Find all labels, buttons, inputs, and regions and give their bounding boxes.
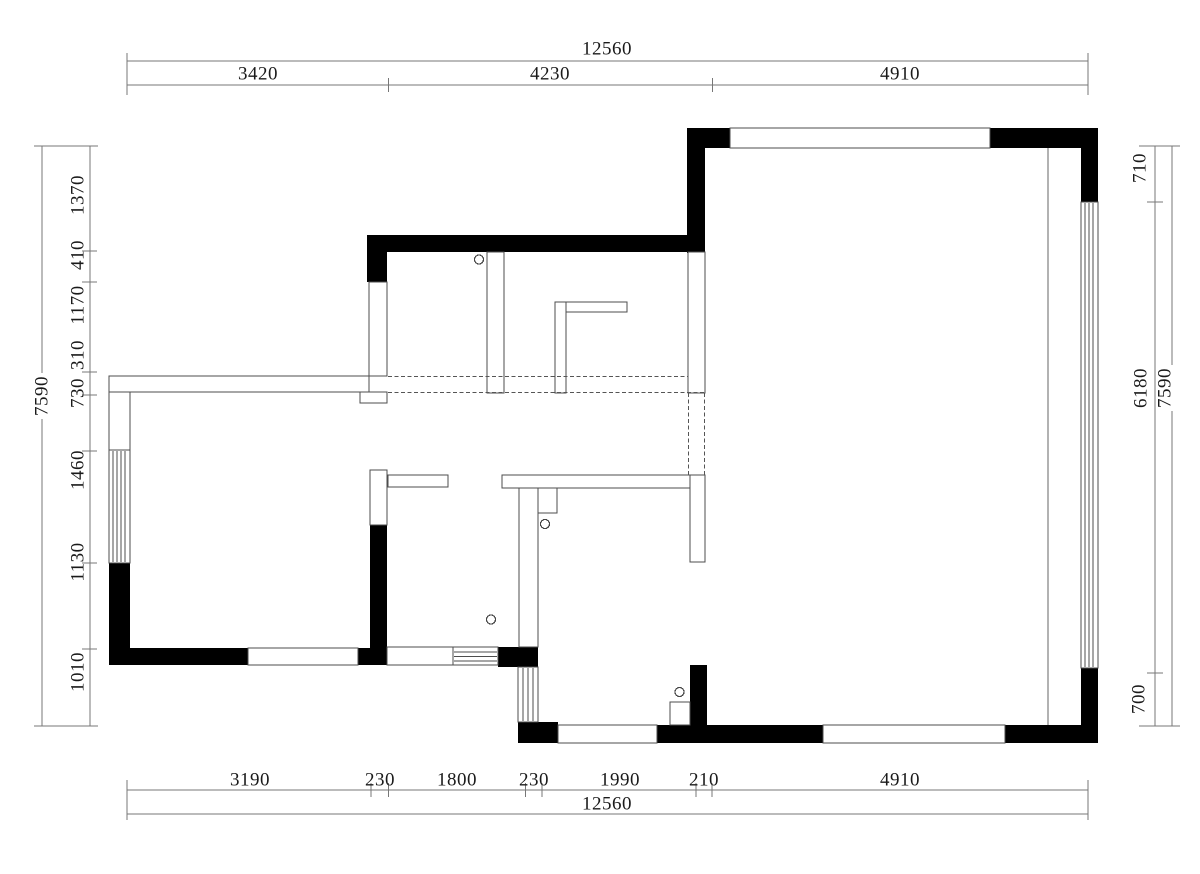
wall-segment bbox=[110, 648, 248, 665]
outline-wall bbox=[388, 475, 448, 487]
wall-segment bbox=[358, 648, 387, 665]
dim-left-segment-6: 1130 bbox=[69, 542, 88, 581]
outline-wall bbox=[387, 647, 453, 665]
outline-wall bbox=[555, 302, 566, 393]
wall-segment bbox=[370, 525, 387, 650]
wall-segment bbox=[367, 252, 387, 282]
dim-top-segment-1: 4230 bbox=[530, 65, 570, 84]
dim-bottom-segment-4: 1990 bbox=[600, 771, 640, 790]
dim-left-total: 7590 bbox=[33, 373, 52, 419]
dim-top-total: 12560 bbox=[582, 40, 632, 59]
window-glazing bbox=[113, 203, 1093, 721]
dim-right-total: 7590 bbox=[1156, 365, 1175, 411]
floor-plan-drawing bbox=[0, 0, 1200, 874]
drain-symbol bbox=[675, 688, 684, 697]
window-frame bbox=[823, 725, 1005, 743]
dimension-chain-right bbox=[1139, 146, 1180, 726]
dim-right-segment-0: 710 bbox=[1131, 153, 1150, 183]
wall-opening bbox=[558, 725, 657, 743]
outline-wall bbox=[690, 475, 705, 562]
dim-top-segment-0: 3420 bbox=[238, 65, 278, 84]
wall-segment bbox=[109, 563, 130, 665]
wall-segment bbox=[1005, 725, 1098, 743]
dim-left-segment-1: 410 bbox=[69, 240, 88, 270]
dim-bottom-segment-2: 1800 bbox=[437, 771, 477, 790]
dim-left-segment-7: 1010 bbox=[69, 652, 88, 692]
window-frame bbox=[109, 450, 130, 563]
outline-wall bbox=[360, 392, 387, 403]
outline-wall bbox=[487, 252, 504, 393]
window-frame bbox=[730, 128, 990, 148]
outline-wall bbox=[369, 282, 387, 376]
wall-segment bbox=[367, 235, 705, 252]
outline-wall bbox=[688, 252, 705, 393]
outline-wall bbox=[109, 376, 369, 392]
wall-segment bbox=[690, 665, 707, 725]
drain-symbol bbox=[541, 520, 550, 529]
dimension-lines bbox=[34, 53, 1180, 820]
dashed-lines bbox=[388, 377, 705, 476]
dim-bottom-segment-6: 4910 bbox=[880, 771, 920, 790]
wall-segment bbox=[498, 647, 538, 667]
dim-bottom-segment-3: 230 bbox=[519, 771, 549, 790]
wall-segment bbox=[687, 128, 730, 148]
dim-left-segment-3: 310 bbox=[69, 340, 88, 370]
wall-segment bbox=[518, 722, 558, 743]
wall-segment bbox=[1081, 148, 1098, 202]
dimension-chain-left bbox=[34, 146, 98, 726]
wall-opening bbox=[248, 648, 358, 665]
duct-box bbox=[538, 488, 557, 513]
outline-wall bbox=[109, 392, 130, 450]
outline-wall bbox=[502, 475, 705, 488]
dim-bottom-segment-1: 230 bbox=[365, 771, 395, 790]
drain-symbol bbox=[475, 255, 484, 264]
floor-plan-page: 12560 3420 4230 4910 3190 230 1800 230 1… bbox=[0, 0, 1200, 874]
dim-left-segment-2: 1170 bbox=[69, 285, 88, 324]
outline-wall bbox=[370, 470, 387, 525]
outline-wall bbox=[519, 488, 538, 647]
dim-bottom-segment-5: 210 bbox=[689, 771, 719, 790]
dim-left-segment-5: 1460 bbox=[69, 450, 88, 490]
fixture-box bbox=[670, 702, 690, 725]
dim-left-segment-0: 1370 bbox=[69, 175, 88, 215]
wall-segment bbox=[990, 128, 1098, 148]
dim-top-segment-2: 4910 bbox=[880, 65, 920, 84]
dim-left-segment-4: 730 bbox=[69, 378, 88, 408]
dim-bottom-segment-0: 3190 bbox=[230, 771, 270, 790]
wall-segment bbox=[1081, 668, 1098, 726]
outline-walls bbox=[109, 128, 1098, 743]
drain-symbol bbox=[487, 615, 496, 624]
wall-segment bbox=[657, 725, 823, 743]
dim-right-segment-2: 700 bbox=[1130, 684, 1149, 714]
dim-bottom-total: 12560 bbox=[582, 795, 632, 814]
dim-right-segment-1: 6180 bbox=[1132, 368, 1151, 408]
